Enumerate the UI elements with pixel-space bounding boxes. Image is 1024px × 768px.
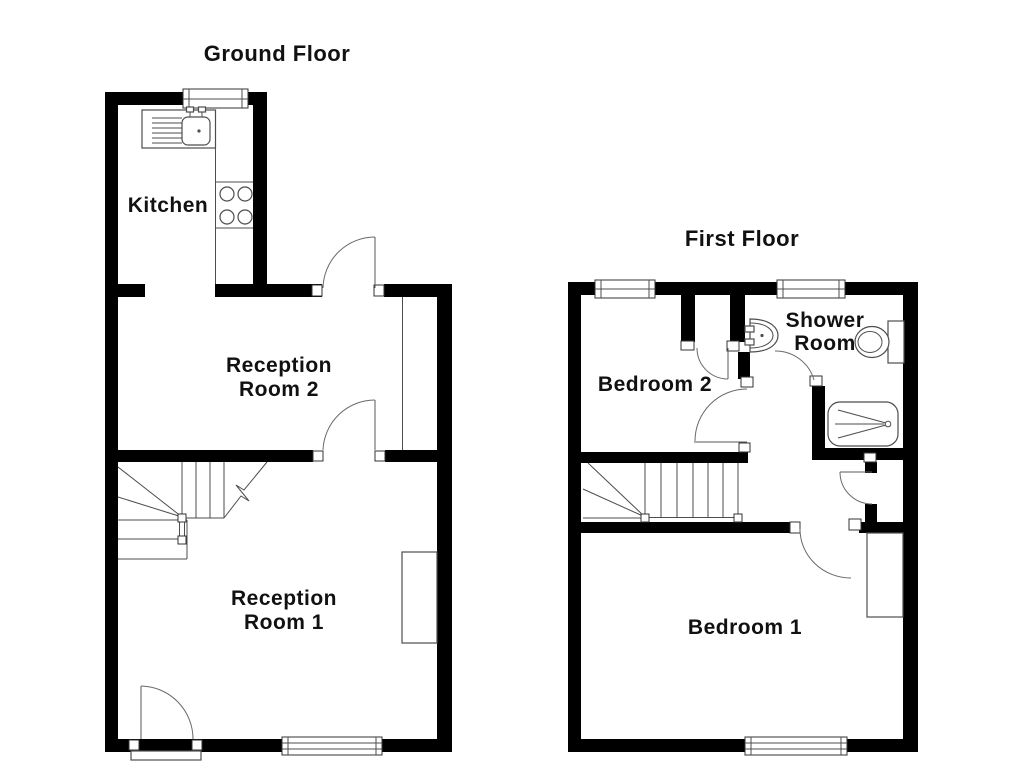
kitchen-hob-icon [216,182,254,228]
room-label-bedroom1: Bedroom 1 [688,616,802,639]
bedroom2-window-icon [595,280,655,298]
room-label-shower-room: Shower [786,309,865,332]
door-jamb [849,519,861,530]
shower-room-window-icon [777,280,845,298]
door-jamb [681,341,694,350]
room-label-bedroom2: Bedroom 2 [598,373,712,396]
airing-cupboard-door-icon [840,472,872,504]
bedroom1-window-icon [745,737,847,755]
floorplan-page: Ground Floor [0,0,1024,768]
door-jamb [741,377,753,387]
door-jamb [727,341,739,351]
ground-floor-walls [105,92,452,752]
first-floor-title: First Floor [685,226,799,251]
door-jamb [810,376,822,386]
door-jamb [864,453,876,462]
door-jamb [790,522,800,533]
chimney-breast [402,552,437,643]
winder-stairs-icon [118,462,267,559]
stairs-icon [583,463,742,522]
first-floor-plan: First Floor [568,226,918,755]
room-label-reception1: Reception [231,587,337,610]
bedroom1-door-icon [800,529,851,578]
room-label-reception2: Reception [226,354,332,377]
basin-icon [745,319,778,352]
door-jamb [739,443,750,452]
bath-icon [828,402,898,446]
floorplan-drawing: Ground Floor [0,0,1024,768]
room-label-kitchen: Kitchen [128,194,209,217]
reception2-door-icon [313,400,385,461]
shower-door-icon [775,351,814,380]
kitchen-sink-icon [142,107,216,148]
ground-floor-title: Ground Floor [204,41,351,66]
kitchen-window-icon [183,89,248,108]
room-label-reception2: Room 2 [239,378,319,401]
room-label-reception1: Room 1 [244,611,324,634]
reception1-window-icon [282,737,382,755]
built-in-cupboard [867,533,903,617]
ground-floor-plan: Ground Floor [105,41,452,760]
back-door-icon [312,237,384,296]
room-label-shower-room: Room [794,332,856,355]
bedroom2-door-icon [694,389,747,442]
